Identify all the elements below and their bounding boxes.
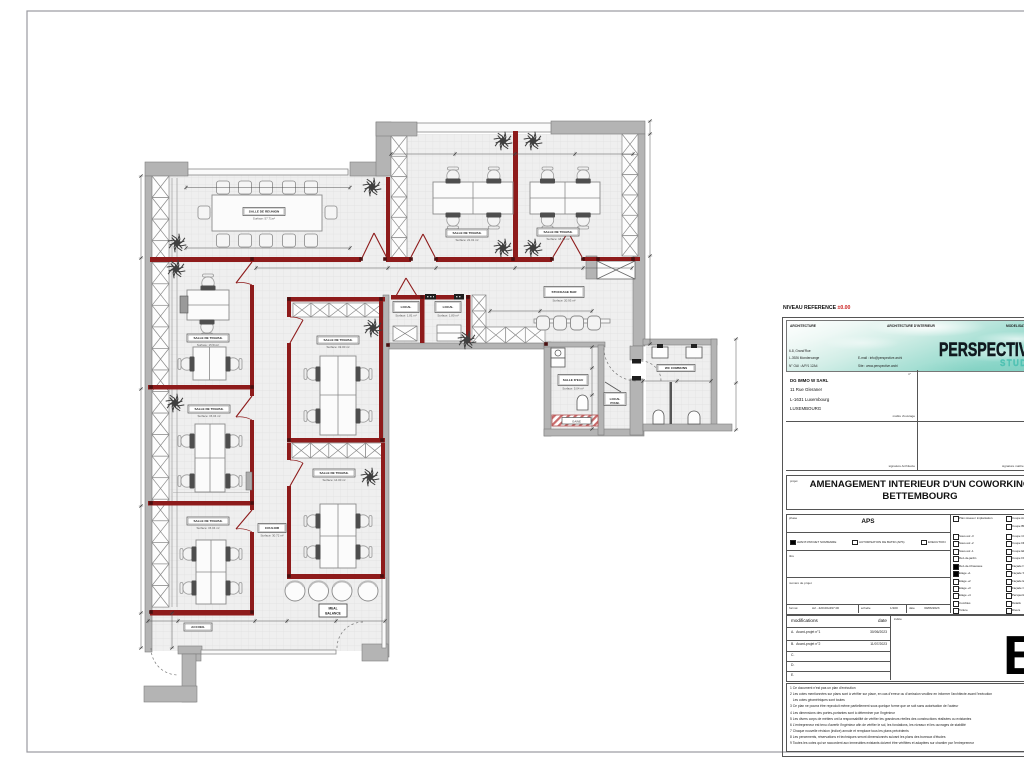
svg-text:Surface: 1.81 m²: Surface: 1.81 m² <box>395 314 416 318</box>
svg-text:BALANCE: BALANCE <box>325 612 341 616</box>
svg-text:Surface: 1.80 m²: Surface: 1.80 m² <box>437 314 458 318</box>
svg-text:Surface: 30.72 m²: Surface: 30.72 m² <box>261 534 284 538</box>
svg-text:SALLE DE TRAVAIL: SALLE DE TRAVAIL <box>543 230 572 234</box>
svg-text:Surface: 15.51m²: Surface: 15.51m² <box>197 343 219 347</box>
svg-text:Surface: 14.00 m²: Surface: 14.00 m² <box>323 478 346 482</box>
svg-text:Surface: 19.00 m²: Surface: 19.00 m² <box>327 345 350 349</box>
svg-text:Surface: 15.04 m²: Surface: 15.04 m² <box>198 414 221 418</box>
svg-text:SALLE D'EAU: SALLE D'EAU <box>563 378 584 382</box>
svg-text:MEAL: MEAL <box>328 607 337 611</box>
svg-text:SALLE DE TRAVAIL: SALLE DE TRAVAIL <box>452 231 481 235</box>
svg-text:SALLE DE TRAVAIL: SALLE DE TRAVAIL <box>193 519 222 523</box>
svg-text:Surface: 57.71m²: Surface: 57.71m² <box>253 217 275 221</box>
svg-text:STOCKAGE BAR: STOCKAGE BAR <box>551 290 577 294</box>
svg-text:Surface: 18.36 m²: Surface: 18.36 m² <box>547 237 570 241</box>
svg-text:SALLE DE REUNION: SALLE DE REUNION <box>249 210 280 214</box>
svg-text:Surface: 15.04 m²: Surface: 15.04 m² <box>197 526 220 530</box>
svg-text:COULOIR: COULOIR <box>265 526 280 530</box>
svg-text:GAINE: GAINE <box>572 419 581 423</box>
svg-text:WC COMMUNS: WC COMMUNS <box>665 366 687 370</box>
svg-text:ACCUEIL: ACCUEIL <box>191 625 205 629</box>
svg-text:SALLE DE TRAVAIL: SALLE DE TRAVAIL <box>319 471 348 475</box>
svg-text:SALLE DE TRAVAIL: SALLE DE TRAVAIL <box>193 336 222 340</box>
svg-text:SALLE DE TRAVAIL: SALLE DE TRAVAIL <box>323 338 352 342</box>
svg-text:Surface: 21.01 m²: Surface: 21.01 m² <box>456 238 479 242</box>
svg-text:LOCAL: LOCAL <box>401 305 412 309</box>
svg-text:SALLE DE TRAVAIL: SALLE DE TRAVAIL <box>194 407 223 411</box>
svg-text:Surface: 20.93 m²: Surface: 20.93 m² <box>553 299 576 303</box>
svg-text:POUB.: POUB. <box>610 401 619 405</box>
svg-text:LOCAL: LOCAL <box>443 305 454 309</box>
svg-text:Surface: 5.04 m²: Surface: 5.04 m² <box>562 387 583 391</box>
